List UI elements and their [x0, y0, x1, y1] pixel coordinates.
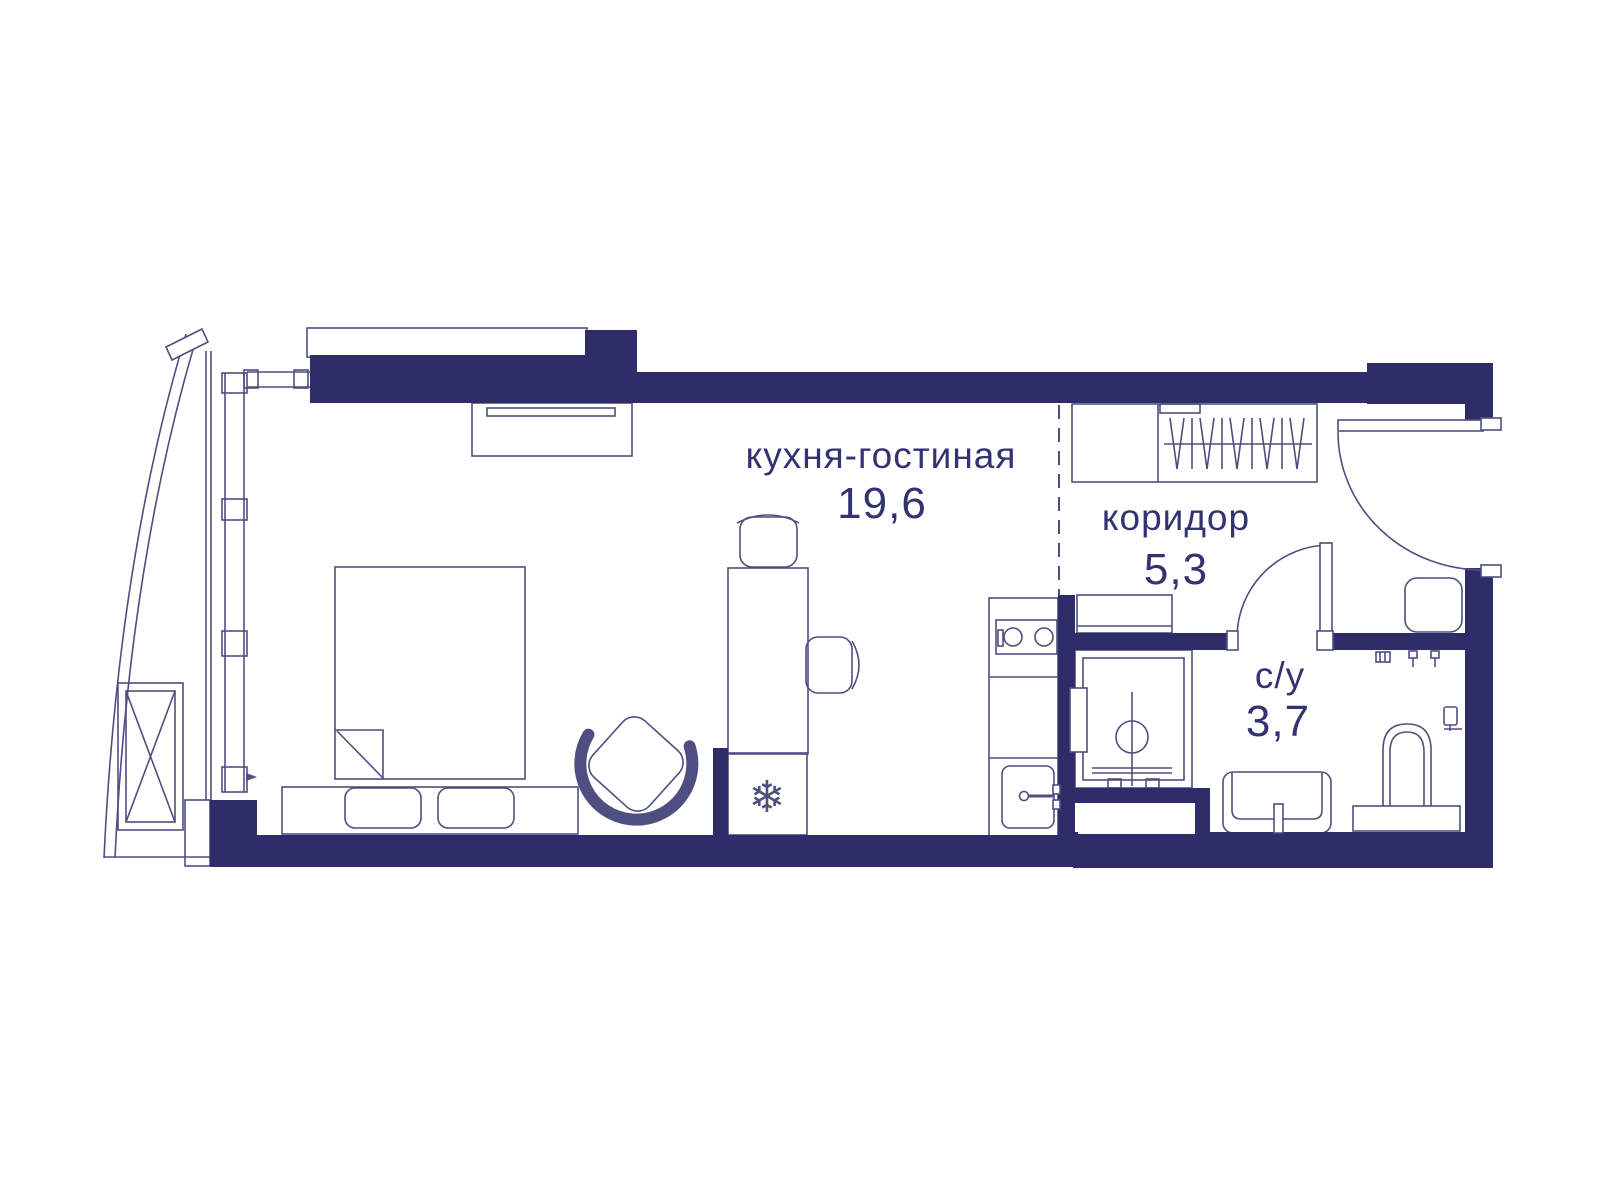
pillow: [438, 788, 514, 828]
facade-curve: [104, 329, 211, 858]
bed: [282, 567, 578, 834]
room-label-bathroom: с/у: [1255, 655, 1305, 697]
door-jamb: [1227, 631, 1238, 650]
towel-hooks-icon: [1376, 651, 1439, 667]
room-label-corridor: коридор: [1102, 497, 1250, 539]
wall-segment: [1465, 568, 1493, 868]
room-area-corridor: 5,3: [1144, 545, 1208, 595]
window: [222, 370, 310, 792]
faucet-mount-icon: [1053, 785, 1060, 794]
facade-cap: [166, 329, 208, 360]
door-leaf: [1320, 543, 1332, 638]
wardrobe: [1072, 404, 1317, 482]
tv-stand: [472, 403, 632, 456]
ventilation-shaft: [118, 683, 183, 830]
armchair: [558, 691, 710, 843]
bar-table: [728, 515, 859, 754]
floor-plan: ❄: [0, 0, 1600, 1200]
shower: [1075, 650, 1192, 788]
faucet-mount-icon: [1053, 800, 1060, 809]
door-swing-arc: [1338, 432, 1483, 570]
door-leaf: [1338, 420, 1483, 431]
wall-segment: [255, 835, 1075, 867]
wall-segment: [1075, 788, 1210, 803]
wall-segment: [1075, 633, 1228, 650]
wall-ledge: [185, 800, 210, 866]
room-area-bathroom: 3,7: [1246, 697, 1310, 747]
fridge: ❄: [728, 753, 807, 835]
wall-segment: [713, 748, 728, 837]
wall-niche: [1078, 803, 1195, 834]
door-hinge: [1317, 631, 1333, 650]
snowflake-icon: ❄: [749, 772, 786, 823]
shower-door: [1070, 688, 1087, 752]
wall-segment: [1073, 832, 1493, 868]
door-jamb: [1481, 418, 1501, 430]
entrance-door: [1338, 418, 1501, 577]
corridor-cabinet: [1077, 595, 1172, 633]
wall-segment: [1332, 633, 1465, 650]
balcony-parapet: [307, 328, 587, 357]
room-label-kitchen-living: кухня-гостиная: [746, 435, 1017, 477]
stove-icon: [996, 620, 1057, 654]
wall-segment: [310, 355, 587, 403]
room-area-kitchen-living: 19,6: [837, 479, 927, 529]
wall-segment: [210, 800, 257, 867]
wall-segment: [1195, 788, 1210, 836]
pillow: [345, 788, 421, 828]
toilet-paper-holder-icon: [1444, 707, 1462, 731]
bathroom-door: [1227, 543, 1333, 650]
door-jamb: [1481, 565, 1501, 577]
wall-segment: [1367, 363, 1493, 404]
wall-segment: [637, 372, 1368, 403]
floor-plan-drawing: ❄: [0, 0, 1600, 1200]
tv-icon: [487, 408, 615, 416]
window-handle-icon: [246, 773, 257, 781]
stool: [806, 637, 852, 693]
sink-faucet-icon: [1274, 804, 1283, 833]
kitchen-counter: [989, 598, 1058, 836]
wall-segment: [585, 330, 637, 403]
door-swing-arc: [1237, 545, 1330, 636]
water-heater-icon: [1405, 578, 1462, 632]
stool: [740, 517, 797, 567]
bed-base: [282, 787, 578, 834]
toilet-icon: [1353, 724, 1460, 831]
